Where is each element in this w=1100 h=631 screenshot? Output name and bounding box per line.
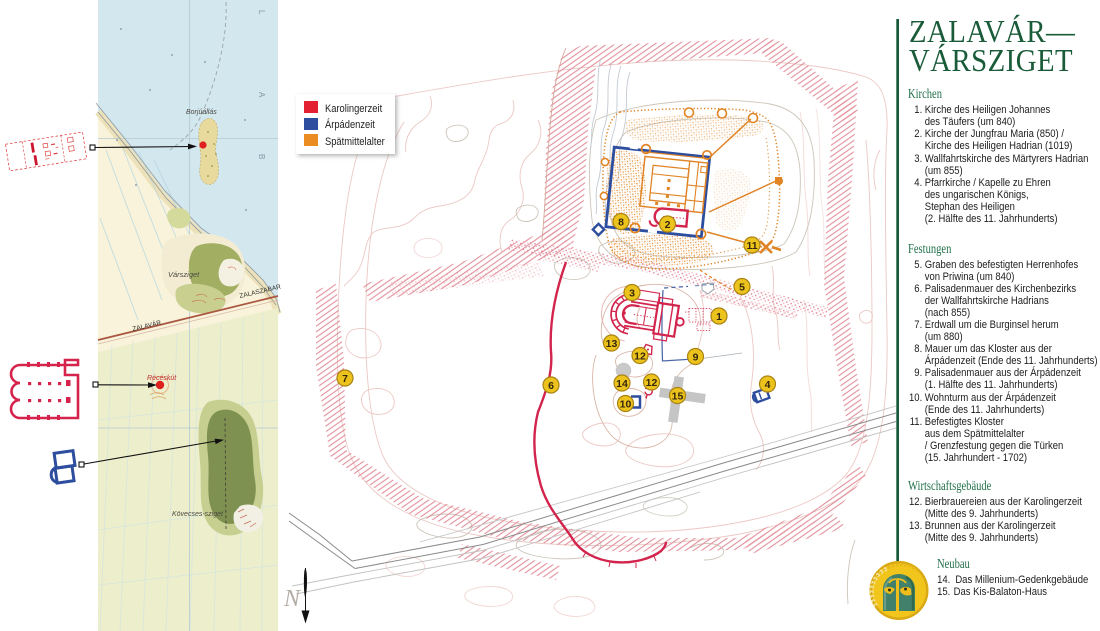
svg-text:1: 1 [716,311,722,323]
svg-text:Kövecses-sziget: Kövecses-sziget [172,511,224,518]
svg-text:9: 9 [693,351,699,363]
svg-text:10: 10 [620,398,632,410]
svg-text:4: 4 [765,379,771,391]
svg-text:A: A [257,92,266,98]
svg-text:Vársziget: Vársziget [168,270,200,279]
svg-text:Borjúállás: Borjúállás [186,109,217,116]
svg-text:5: 5 [739,281,745,293]
svg-text:13: 13 [606,338,618,350]
svg-text:12: 12 [634,350,646,362]
svg-text:L: L [257,10,266,15]
svg-text:2: 2 [665,219,671,231]
svg-text:14: 14 [616,378,628,390]
svg-text:11: 11 [746,240,757,252]
svg-text:15: 15 [672,390,684,402]
svg-text:B: B [257,154,266,159]
svg-text:3: 3 [629,287,635,299]
svg-text:N: N [283,586,302,612]
svg-text:Récéskút: Récéskút [147,375,177,382]
svg-text:7: 7 [342,373,348,385]
svg-text:12: 12 [646,377,658,389]
svg-text:8: 8 [618,216,624,228]
svg-text:6: 6 [548,380,554,392]
